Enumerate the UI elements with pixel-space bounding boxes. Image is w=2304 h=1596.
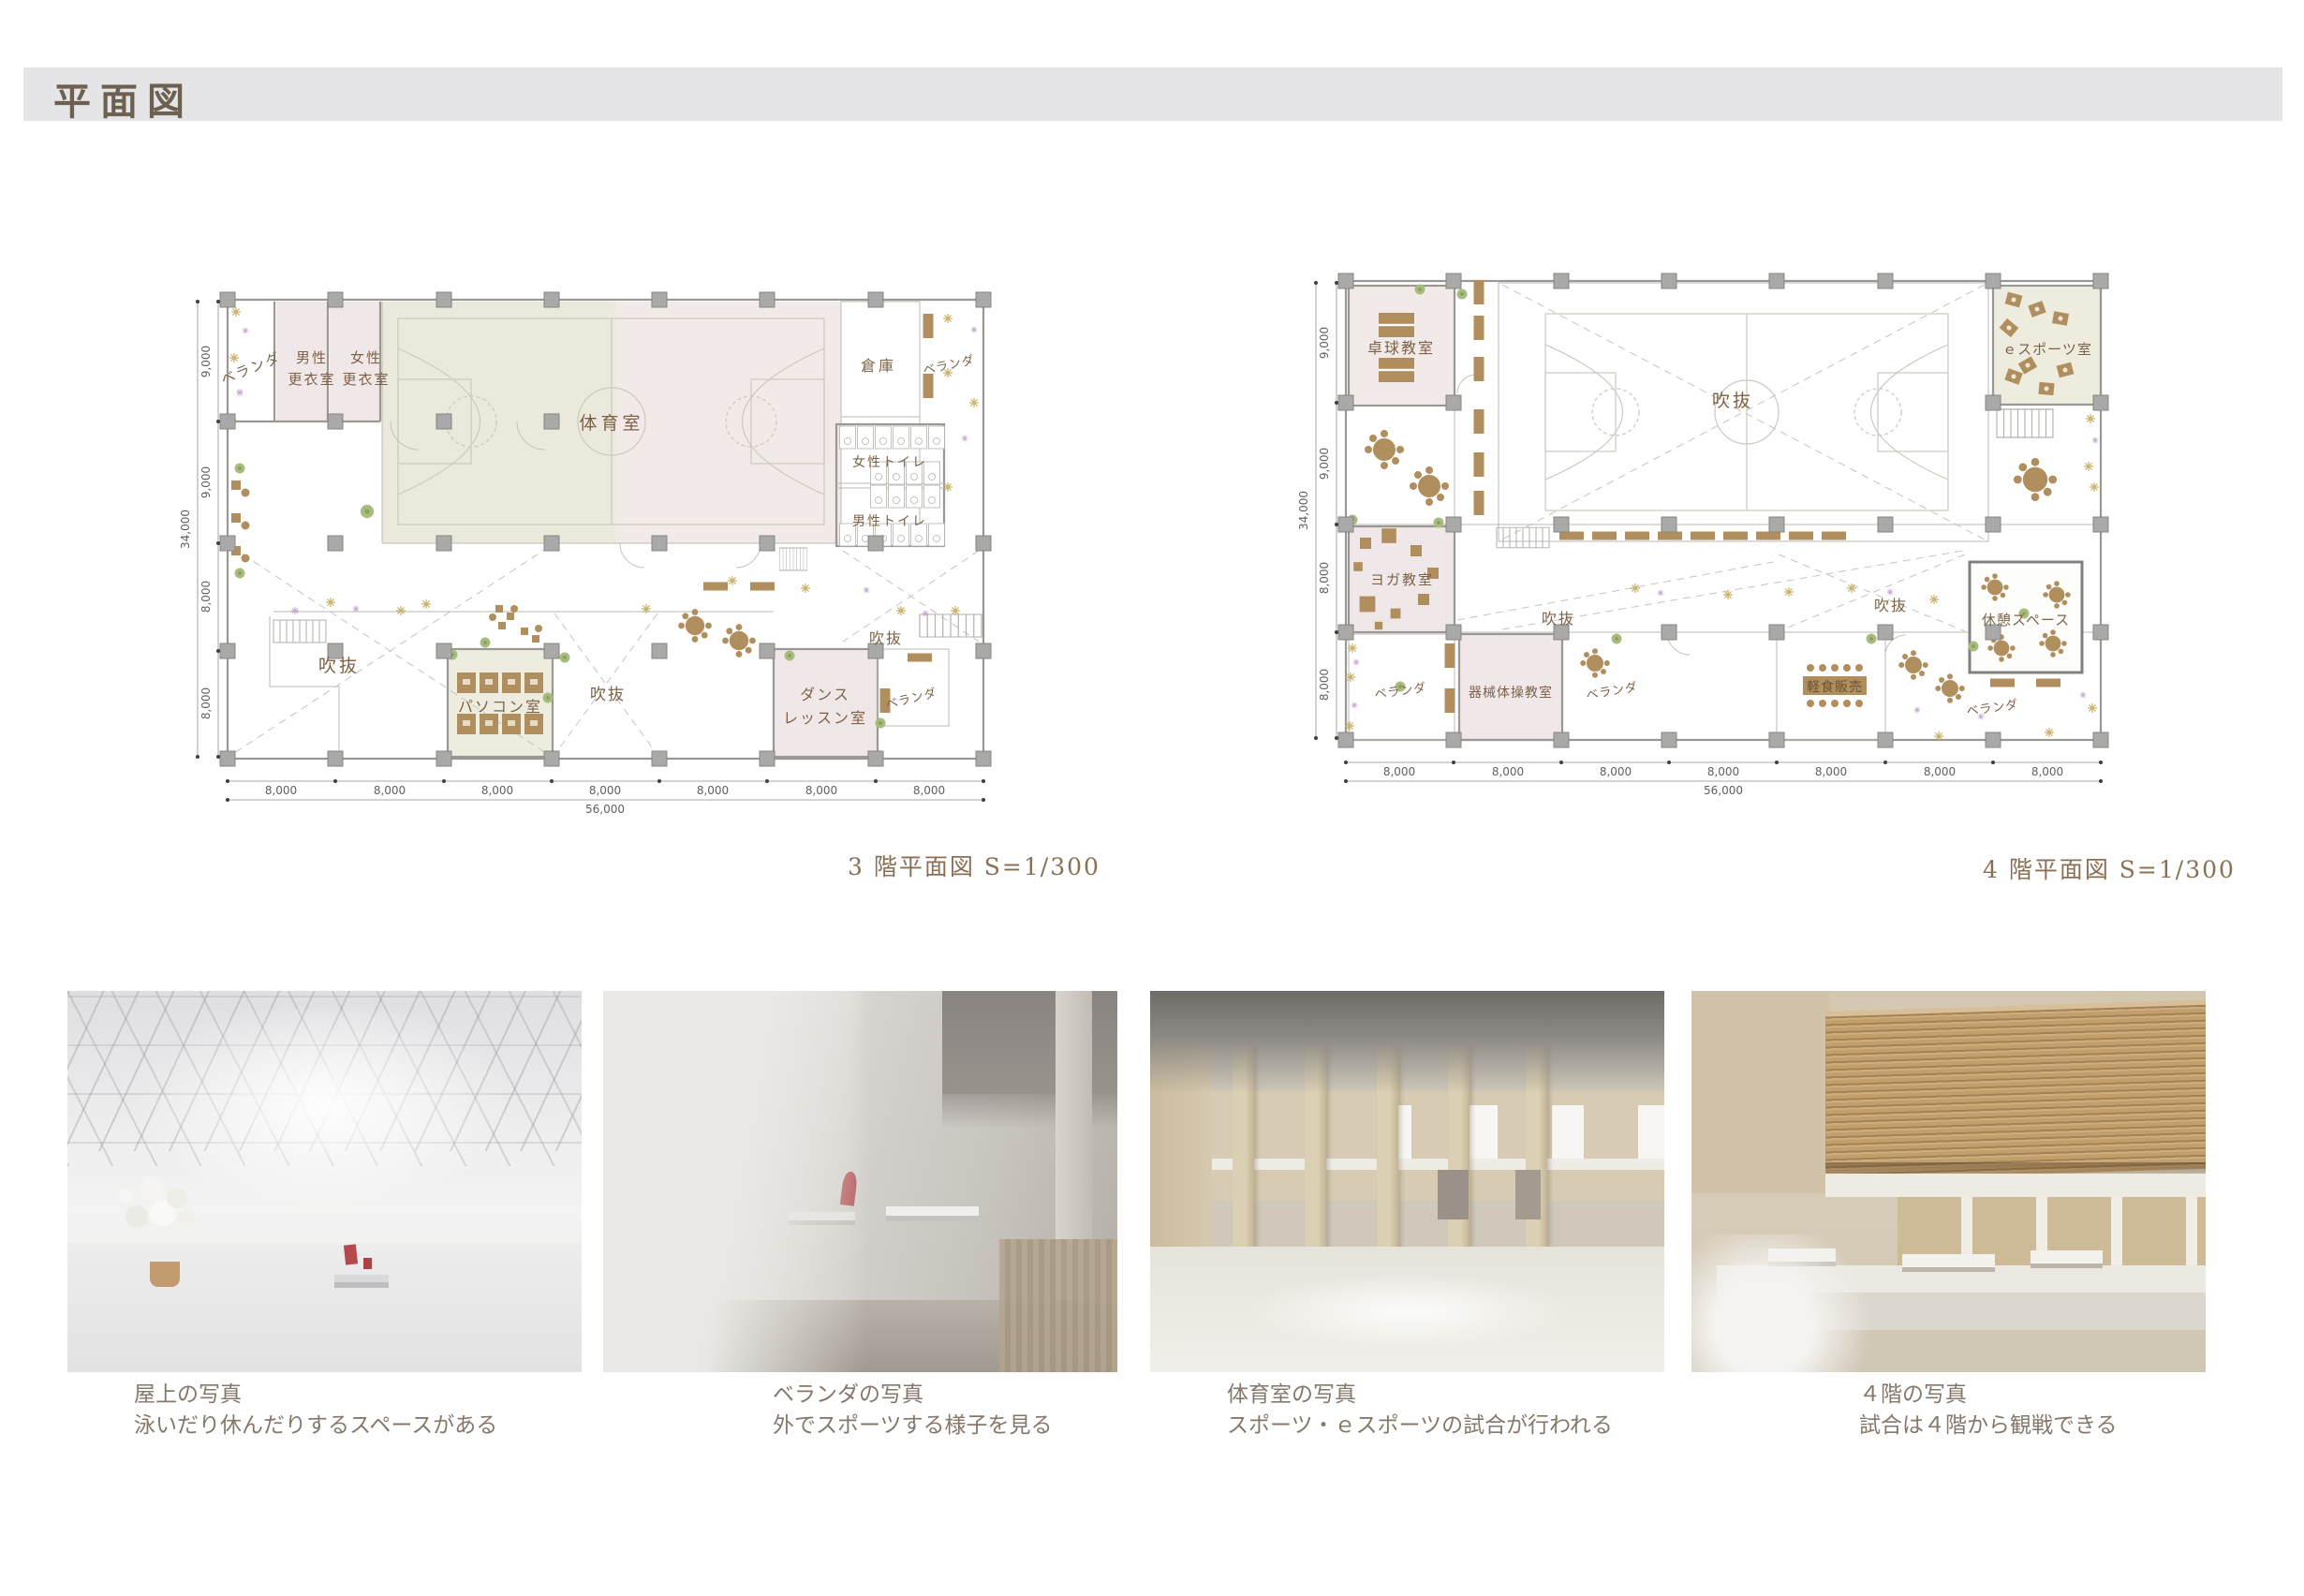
dim-4f-h4: 8,000 (1707, 765, 1739, 778)
dim-3f-v1: 9,000 (199, 346, 213, 377)
dim-4f-h7: 8,000 (2031, 765, 2063, 778)
floor4-plan: 卓球教室 吹抜 ｅスポーツ室 ヨガ教室 ベランダ 器械体操教室 吹抜 ベランダ … (1297, 262, 2215, 805)
dim-3f-h5: 8,000 (697, 784, 729, 797)
room-label-gym: 体育室 (579, 413, 643, 434)
model-photo-veranda (603, 991, 1117, 1372)
floor3-caption: 3 階平面図 S=1/300 (848, 849, 1100, 882)
room-label-womens-locker-1: 女性 (350, 349, 382, 366)
dim-3f-h7: 8,000 (913, 784, 945, 797)
dim-3f-h6: 8,000 (805, 784, 837, 797)
model-photo-4f (1691, 991, 2206, 1372)
dim-3f-htotal: 56,000 (585, 803, 625, 815)
white-gap (1825, 1174, 2206, 1196)
caption-title: ベランダの写真 (773, 1379, 1053, 1410)
caption-desc: 泳いだり休んだりするスペースがある (134, 1410, 497, 1441)
dim-3f-h2: 8,000 (374, 784, 406, 797)
dim-4f-v2: 9,000 (1318, 448, 1331, 480)
bench (334, 1275, 389, 1288)
room-label-pc-room: パソコン室 (458, 698, 542, 716)
caption-title: 体育室の写真 (1227, 1379, 1613, 1410)
room-label-dance-2: レッスン室 (783, 709, 867, 727)
room-label-womens-toilet: 女性トイレ (852, 454, 927, 470)
room-label-void-gym: 吹抜 (1712, 391, 1753, 411)
dim-3f-v3: 8,000 (199, 581, 213, 613)
white-bench-3 (2031, 1250, 2103, 1268)
page-title: 平面図 (53, 71, 194, 126)
title-bar: 平面図 (23, 67, 2282, 121)
presentation-board: 平面図 (0, 0, 2304, 1596)
dim-4f-vtotal: 34,000 (1297, 491, 1310, 530)
room-label-yoga: ヨガ教室 (1370, 571, 1434, 588)
door-opening-2 (1515, 1170, 1541, 1219)
dim-3f-vtotal: 34,000 (179, 510, 192, 549)
floor-glow (1243, 1273, 1572, 1349)
corrugated-cardboard-wall (1825, 1000, 2206, 1181)
room-label-table-tennis: 卓球教室 (1367, 339, 1435, 357)
room-label-void3: 吹抜 (869, 629, 903, 647)
caption-title: ４階の写真 (1859, 1379, 2118, 1410)
red-figure (344, 1244, 358, 1264)
model-photo-gym (1150, 991, 1664, 1372)
dim-3f-h1: 8,000 (265, 784, 297, 797)
basketball-court-4f (1545, 314, 1948, 510)
room-label-womens-locker-2: 更衣室 (342, 371, 390, 388)
door-opening (1438, 1170, 1469, 1219)
corner-blur (1691, 1234, 1887, 1372)
dim-4f-v3: 8,000 (1318, 562, 1331, 594)
room-label-storage: 倉庫 (861, 357, 896, 375)
balcony-edge (1150, 1159, 1664, 1170)
dim-4f-h5: 8,000 (1815, 765, 1847, 778)
room-label-void1: 吹抜 (318, 656, 360, 676)
bench-right (886, 1206, 979, 1221)
dim-4f-h2: 8,000 (1492, 765, 1524, 778)
left-tan-wall (1691, 991, 1830, 1193)
foreground-blur (603, 991, 861, 1372)
room-label-gymnastics: 器械体操教室 (1469, 685, 1553, 701)
room-label-veranda-br: ベランダ (884, 687, 938, 713)
dim-3f-h3: 8,000 (481, 784, 513, 797)
floor3-stairs (273, 548, 982, 643)
floor4-void-lines (1457, 285, 1985, 631)
room-label-void-right: 吹抜 (1874, 597, 1908, 614)
caption-title: 屋上の写真 (134, 1379, 497, 1410)
dim-3f-h4: 8,000 (589, 784, 621, 797)
caption-rooftop: 屋上の写真 泳いだり休んだりするスペースがある (134, 1379, 497, 1441)
dim-4f-v4: 8,000 (1318, 669, 1331, 701)
ceiling-shadow (1150, 991, 1664, 1094)
rooftop-floor (67, 1243, 582, 1372)
dim-3f-v2: 9,000 (199, 466, 213, 498)
dim-4f-h3: 8,000 (1600, 765, 1632, 778)
wood-slats (999, 1239, 1117, 1372)
room-label-veranda-br: ベランダ (1966, 698, 2020, 719)
caption-4f: ４階の写真 試合は４階から観戦できる (1859, 1379, 2118, 1441)
room-label-veranda-bl: ベランダ (1374, 681, 1428, 702)
caption-desc: スポーツ・ｅスポーツの試合が行われる (1227, 1410, 1613, 1441)
daylight-glow (119, 1010, 530, 1219)
dim-4f-h1: 8,000 (1383, 765, 1415, 778)
room-label-dance-1: ダンス (800, 686, 850, 703)
room-label-snack: 軽食販売 (1807, 679, 1863, 695)
flower-pot (150, 1262, 180, 1287)
room-label-void-mid: 吹抜 (1542, 610, 1575, 628)
caption-desc: 外でスポーツする様子を見る (773, 1410, 1053, 1441)
room-label-rest-space: 休憩スペース (1982, 612, 2070, 628)
floor3-plan: ベランダ 男性 更衣室 女性 更衣室 体育室 倉庫 ベランダ 女性トイレ 男性ト… (131, 272, 1030, 815)
dried-flowers (119, 1190, 132, 1203)
caption-desc: 試合は４階から観戦できる (1859, 1410, 2118, 1441)
room-label-void2: 吹抜 (590, 686, 626, 704)
dim-4f-v1: 9,000 (1318, 327, 1331, 359)
room-label-esports: ｅスポーツ室 (2002, 341, 2092, 358)
caption-gym: 体育室の写真 スポーツ・ｅスポーツの試合が行われる (1227, 1379, 1613, 1441)
dim-4f-htotal: 56,000 (1704, 784, 1743, 797)
room-label-mens-locker-1: 男性 (296, 349, 328, 366)
room-label-mens-locker-2: 更衣室 (288, 371, 335, 388)
room-label-veranda-mid: ベランダ (1586, 680, 1640, 702)
white-bench-2 (1902, 1254, 1995, 1272)
red-figure-2 (363, 1258, 372, 1269)
floor4-caption: 4 階平面図 S=1/300 (1983, 851, 2236, 885)
dim-4f-h6: 8,000 (1924, 765, 1956, 778)
room-label-mens-toilet: 男性トイレ (852, 514, 927, 529)
caption-veranda: ベランダの写真 外でスポーツする様子を見る (773, 1379, 1053, 1441)
model-photo-rooftop (67, 991, 582, 1372)
floor3-room-fills (276, 302, 878, 757)
dim-3f-v4: 8,000 (199, 687, 213, 719)
